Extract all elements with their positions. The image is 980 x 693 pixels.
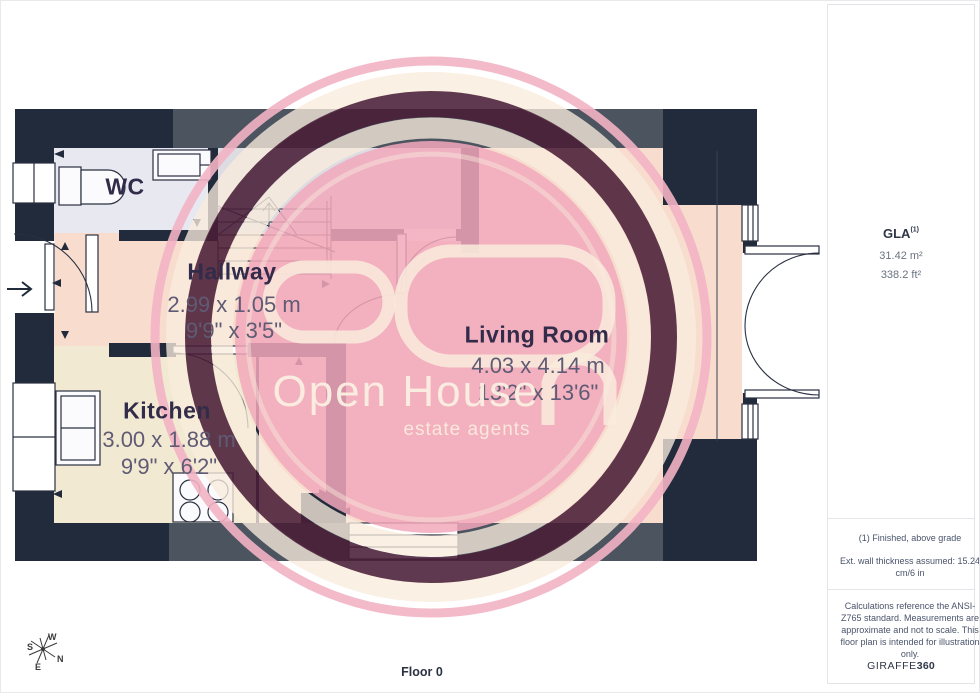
window-right-top-icon [742, 205, 758, 241]
gla-metric: 31.42 m² [828, 250, 974, 262]
french-door-leaf-top [745, 246, 819, 254]
sidebar-divider-1 [828, 518, 974, 519]
brand-number: 360 [917, 660, 935, 672]
kitchen-sink-icon [56, 391, 100, 465]
room-label-wc: WC [105, 174, 144, 201]
room-dim-hallway-metric: 2.99 x 1.05 m [167, 292, 300, 318]
info-sidebar: GLA(1) 31.42 m² 338.2 ft² (1) Finished, … [827, 4, 975, 684]
watermark-line1: Open House [272, 367, 539, 417]
gla-imperial: 338.2 ft² [828, 269, 974, 281]
sidebar-divider-2 [828, 589, 974, 590]
entry-door-leaf [45, 244, 54, 310]
note-wall-thickness: Ext. wall thickness assumed: 15.24 cm/6 … [828, 555, 980, 579]
floor-label: Floor 0 [401, 665, 443, 679]
window-left-top-icon [13, 163, 55, 203]
brand-name: GIRAFFE [867, 660, 917, 672]
gla-block: GLA(1) 31.42 m² 338.2 ft² [828, 225, 974, 281]
giraffe360-brand: GIRAFFE360 [828, 660, 974, 672]
window-right-bottom-icon [742, 404, 758, 439]
window-left-kitchen-icon [13, 383, 55, 491]
note-calculations: Calculations reference the ANSI-Z765 sta… [828, 600, 980, 660]
floorplan-page: WC Hallway 2.99 x 1.05 m 9'9" x 3'5" Kit… [0, 0, 980, 693]
wc-door-leaf [86, 235, 98, 312]
note-finished: (1) Finished, above grade [828, 532, 980, 544]
room-dim-kitchen-metric: 3.00 x 1.88 m [102, 427, 235, 453]
compass-w: W [48, 632, 57, 642]
gla-superscript: (1) [910, 227, 919, 234]
gla-label: GLA [883, 226, 910, 241]
room-label-hallway: Hallway [187, 259, 276, 286]
compass-s: S [27, 642, 33, 652]
room-label-kitchen: Kitchen [123, 398, 211, 425]
compass-e: E [35, 662, 41, 672]
room-dim-hallway-imperial: 9'9" x 3'5" [186, 318, 282, 344]
compass-icon: W S N E [7, 613, 87, 675]
room-label-living-room: Living Room [465, 322, 610, 349]
watermark-line2: estate agents [403, 419, 530, 441]
compass-n: N [57, 654, 64, 664]
room-dim-kitchen-imperial: 9'9" x 6'2" [121, 454, 217, 480]
